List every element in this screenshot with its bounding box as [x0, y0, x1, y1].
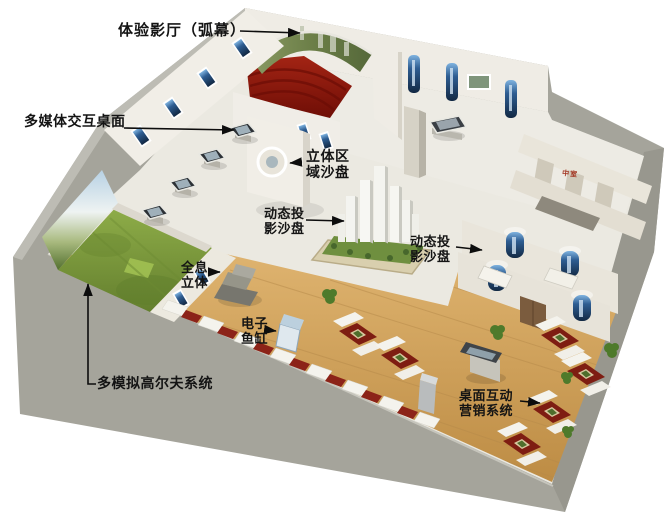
desktop-marketing-label: 桌面互动 营销系统: [459, 390, 513, 419]
leader-dynamic-left: [306, 220, 344, 221]
pillar: [404, 106, 426, 178]
display-niche: [505, 80, 517, 118]
electronic-fish-tank-label: 电子 鱼缸: [241, 318, 268, 347]
floorplan-illustration: [0, 0, 670, 527]
holographic-stereo-label: 全息 立体: [181, 262, 208, 291]
stereo-area-sandbox-label: 立体区 域沙盘: [306, 150, 350, 181]
leader-fishtank: [268, 330, 276, 331]
leader-stereo-sandbox: [290, 162, 302, 163]
framed-picture: [467, 74, 491, 90]
dynamic-sandbox-left-label: 动态投 影沙盘: [264, 208, 305, 237]
dynamic-sandbox-right-label: 动态投 影沙盘: [410, 236, 451, 265]
display-niche: [446, 63, 458, 101]
room-sign-label: 中室: [562, 170, 579, 179]
display-niche: [573, 295, 591, 321]
exhibition-floorplan: 体验影厅（弧幕） 多媒体交互桌面 立体区 域沙盘 动态投 影沙盘 动态投 影沙盘…: [0, 0, 670, 527]
multimedia-table-label: 多媒体交互桌面: [24, 115, 126, 131]
golf-simulator-label: 多模拟高尔夫系统: [97, 377, 213, 393]
experience-theater-label: 体验影厅（弧幕）: [118, 22, 246, 39]
display-niche: [506, 232, 524, 258]
display-niche: [408, 55, 420, 93]
